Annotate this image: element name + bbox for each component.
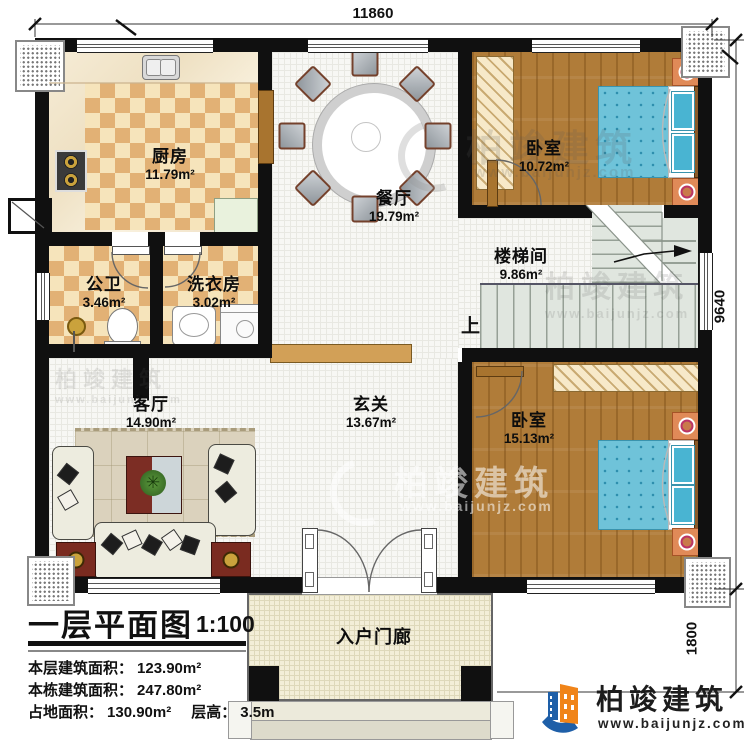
dining-chair — [352, 50, 379, 77]
row-label: 本栋建筑面积： — [28, 682, 133, 699]
label-bathroom: 公卫 3.46m² — [83, 276, 126, 312]
porch-step-side — [490, 701, 514, 739]
porch-step — [250, 701, 492, 722]
window-bedroom1 — [532, 39, 640, 53]
wall-stair-bottom — [462, 348, 712, 362]
bed-duvet — [598, 440, 672, 530]
dining-chair — [425, 123, 452, 150]
stairs-up-label: 上 — [461, 311, 480, 338]
bed-pillow — [672, 486, 694, 524]
wardrobe — [553, 364, 699, 392]
window-dining — [308, 39, 428, 53]
laundry-door — [164, 246, 202, 255]
bed-pillow — [672, 446, 694, 484]
kitchen-door — [258, 90, 274, 164]
label-stairwell: 楼梯间 9.86m² — [494, 248, 548, 284]
window-living — [88, 578, 220, 594]
wall-kitchen-bottom — [35, 232, 112, 246]
wall-kitchen-right — [258, 52, 272, 90]
bedroom2-door — [476, 366, 524, 377]
door-threshold — [302, 577, 437, 595]
wall-bath-laundry — [150, 246, 163, 344]
label-dining: 餐厅 19.79m² — [369, 190, 419, 226]
stairs-landing-line — [642, 262, 696, 264]
side-table — [211, 542, 251, 577]
title-underline — [28, 641, 246, 646]
fridge — [214, 198, 258, 233]
laundry-basin — [172, 306, 216, 346]
label-porch: 入户门廊 — [336, 628, 412, 648]
wall-bedroom1-left — [458, 38, 472, 218]
porch-post — [249, 666, 279, 701]
window-bedroom2 — [527, 579, 655, 594]
row-value: 130.90m² — [107, 704, 171, 721]
stove — [55, 150, 87, 192]
wall-kitchen-bottom — [200, 232, 272, 246]
label-kitchen: 厨房 11.79m² — [145, 148, 195, 184]
bed-duvet — [598, 86, 672, 178]
wall-kitchen-right — [258, 162, 272, 358]
window-kitchen — [77, 39, 213, 53]
shoe-cabinet — [270, 344, 412, 363]
wall-bedroom1-bottom — [458, 205, 592, 218]
row-label: 层高： — [191, 704, 236, 721]
bathroom-door — [112, 246, 150, 255]
bed-pillow — [672, 134, 694, 172]
stairs-upper-flight — [592, 205, 662, 283]
porch-post — [461, 666, 491, 701]
row-value: 3.5m — [240, 704, 274, 721]
floor-lamp — [67, 317, 86, 336]
bedroom1-door — [487, 160, 498, 207]
row-label: 本层建筑面积： — [28, 660, 133, 677]
corner-pier — [684, 557, 731, 608]
dining-chair — [279, 123, 306, 150]
label-bedroom1: 卧室 10.72m² — [519, 140, 569, 176]
plant: ✳ — [140, 470, 166, 496]
label-laundry: 洗衣房 3.02m² — [187, 276, 241, 312]
label-living: 客厅 14.90m² — [126, 396, 176, 432]
plan-scale: 1:100 — [196, 611, 255, 638]
area-row: 本栋建筑面积：247.80m² — [28, 679, 201, 700]
entry-door-panel — [302, 528, 318, 593]
brand-logo: 柏竣建筑 www.baijunjz.com — [538, 676, 748, 740]
area-row: 本层建筑面积：123.90m² — [28, 657, 201, 678]
toilet — [107, 308, 138, 345]
dim-top: 11860 — [338, 5, 408, 22]
row-value: 247.80m² — [137, 682, 201, 699]
entry-door-panel — [421, 528, 437, 593]
kitchen-sink — [142, 55, 180, 80]
area-row: 占地面积：130.90m²层高：3.5m — [28, 701, 274, 722]
bed-pillow — [672, 92, 694, 130]
title-underline-thin — [28, 650, 246, 652]
row-label: 占地面积： — [28, 704, 103, 721]
dim-right-main: 9640 — [712, 277, 729, 337]
wall-bedroom2-left — [458, 362, 472, 578]
brand-name: 柏竣建筑 — [596, 678, 728, 718]
corner-pier — [15, 40, 65, 92]
label-foyer: 玄关 13.67m² — [346, 396, 396, 432]
corner-pier — [681, 26, 730, 78]
brand-url: www.baijunjz.com — [598, 716, 747, 731]
dim-right-porch: 1800 — [684, 611, 701, 667]
plan-title: 一层平面图 — [28, 600, 193, 645]
window-bathroom — [36, 273, 50, 320]
stairs-landing-line — [642, 240, 696, 242]
wall-bath-bottom — [35, 344, 272, 358]
porch-step — [250, 720, 492, 740]
brand-logo-icon — [538, 676, 590, 736]
wall-kitchen-bottom — [148, 232, 165, 246]
row-value: 123.90m² — [137, 660, 201, 677]
label-bedroom2: 卧室 15.13m² — [504, 412, 554, 448]
dining-table-center — [351, 122, 381, 152]
wall-stub — [133, 358, 149, 398]
wall-bedroom1-bottom — [664, 205, 712, 218]
stairs-lower-flight — [480, 283, 698, 350]
corner-pier — [27, 556, 75, 606]
floor-plan: ✳ — [0, 0, 750, 750]
